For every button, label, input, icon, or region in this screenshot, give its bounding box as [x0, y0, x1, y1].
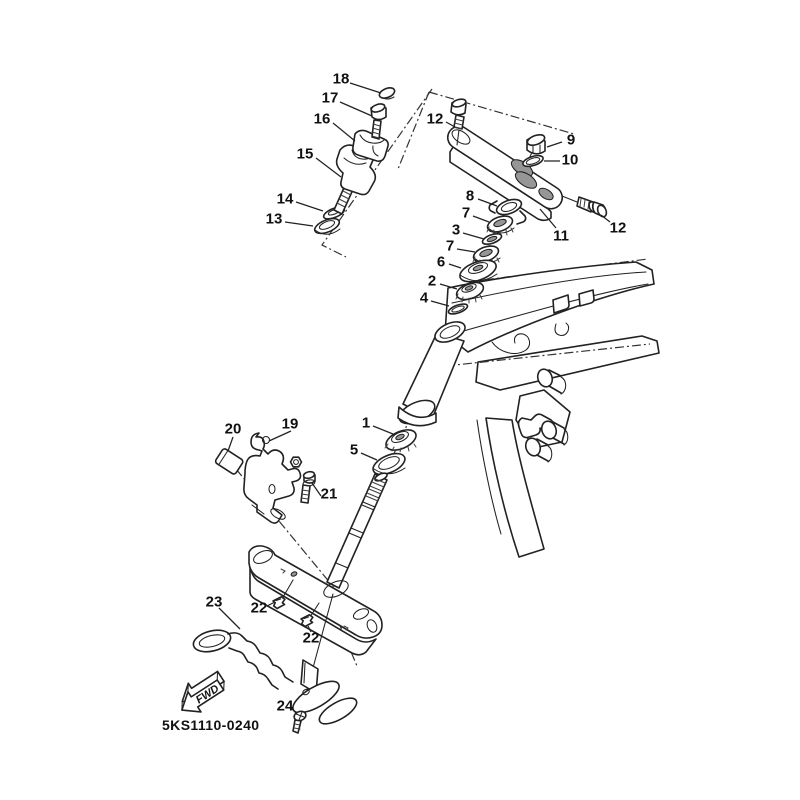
callout-number-10-8: 10 — [562, 152, 579, 169]
callout-number-9-7: 9 — [567, 132, 575, 149]
callout-number-8-11: 8 — [466, 188, 474, 205]
callout-leader-19-20 — [269, 431, 291, 441]
callout-leader-1-18 — [373, 426, 393, 434]
callout-number-24-26: 24 — [277, 698, 294, 715]
callout-number-7-12: 7 — [462, 205, 470, 222]
callout-leader-18-0 — [350, 83, 381, 93]
callout-number-14-4: 14 — [277, 191, 294, 208]
callout-leader-20-21 — [228, 437, 233, 451]
parts-diagram-page: FWD 5KS1110-0240 18171615141312910111287… — [0, 0, 800, 800]
callout-leader-13-5 — [285, 222, 313, 226]
fwd-arrow: FWD — [172, 666, 232, 720]
callout-leader-16-2 — [333, 123, 355, 141]
callout-number-4-17: 4 — [420, 290, 429, 307]
callout-number-6-15: 6 — [437, 254, 445, 271]
callout-number-18-0: 18 — [333, 71, 350, 88]
callout-number-11-9: 11 — [553, 228, 569, 245]
callout-number-15-3: 15 — [297, 146, 314, 163]
callout-leader-5-19 — [361, 453, 377, 460]
callout-number-12-10: 12 — [610, 220, 627, 237]
callout-number-12-6: 12 — [427, 111, 444, 128]
callout-number-7-14: 7 — [446, 238, 454, 255]
callout-leader-7-12 — [473, 216, 489, 222]
callout-leader-14-4 — [296, 202, 323, 211]
callout-leader-7-14 — [457, 249, 475, 252]
callout-number-2-16: 2 — [428, 273, 436, 290]
callout-leader-23-25 — [219, 608, 240, 629]
frame — [396, 259, 659, 557]
callout-number-20-21: 20 — [225, 421, 242, 438]
callout-leader-6-15 — [449, 264, 461, 268]
callout-leader-9-7 — [547, 142, 562, 147]
callout-leader-17-1 — [340, 102, 372, 116]
drawing-number: 5KS1110-0240 — [162, 717, 259, 733]
callout-number-13-5: 13 — [266, 211, 283, 228]
callout-number-16-2: 16 — [314, 111, 331, 128]
callout-number-22-24: 22 — [303, 630, 320, 647]
exploded-drawing: FWD 5KS1110-0240 18171615141312910111287… — [0, 0, 800, 800]
callout-leader-3-13 — [463, 233, 484, 239]
callout-number-22-23: 22 — [251, 600, 268, 617]
callout-number-5-19: 5 — [350, 442, 358, 459]
callout-number-19-20: 19 — [282, 416, 299, 433]
callout-number-3-13: 3 — [452, 222, 460, 239]
callout-leader-21-22 — [312, 483, 321, 496]
callout-number-1-18: 1 — [362, 415, 370, 432]
callout-number-17-1: 17 — [322, 90, 339, 107]
callout-number-23-25: 23 — [206, 594, 223, 611]
callout-number-21-22: 21 — [321, 486, 338, 503]
